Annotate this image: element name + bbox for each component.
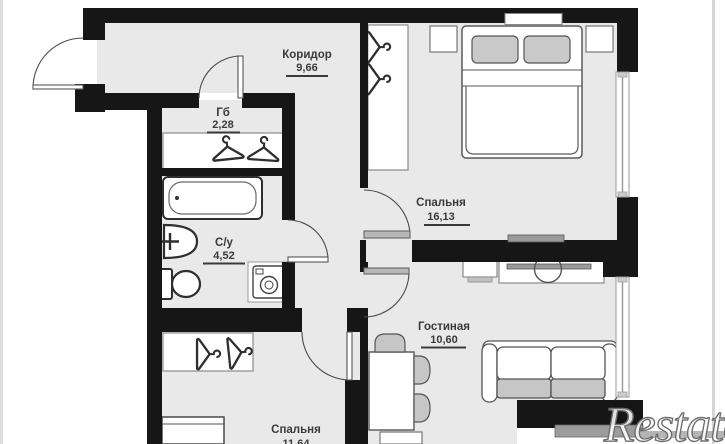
wardrobe-icon bbox=[367, 25, 408, 170]
room-label-bathroom: С/у bbox=[215, 237, 234, 249]
chair-icon bbox=[380, 432, 422, 444]
closet-icon bbox=[163, 133, 288, 169]
room-area-bathroom: 4,52 bbox=[213, 250, 234, 262]
room-area-livingroom: 10,60 bbox=[430, 334, 458, 346]
window-icon bbox=[616, 277, 629, 397]
room-area-bedroom2: 11,64 bbox=[283, 438, 311, 444]
room-label-bedroom2: Спальня bbox=[271, 424, 321, 436]
door-opening bbox=[366, 240, 412, 262]
tv-icon bbox=[508, 235, 564, 242]
room-area-corridor: 9,66 bbox=[296, 62, 317, 74]
room-label-wardrobe: Гб bbox=[216, 107, 230, 119]
toilet-icon bbox=[159, 269, 200, 299]
page-right-edge bbox=[712, 0, 715, 444]
room-area-bedroom1: 16,13 bbox=[427, 211, 455, 223]
nightstand-icon bbox=[586, 26, 613, 52]
chair-icon bbox=[414, 394, 430, 422]
chair-icon bbox=[375, 334, 405, 352]
window-icon bbox=[616, 72, 629, 197]
sofa-icon bbox=[482, 341, 617, 402]
page-left-edge bbox=[0, 0, 3, 444]
bathtub-icon bbox=[163, 177, 262, 219]
room-label-bedroom1: Спальня bbox=[416, 197, 466, 209]
nightstand-icon bbox=[430, 26, 457, 52]
room-label-corridor: Коридор bbox=[282, 49, 332, 61]
radiator-icon bbox=[505, 14, 562, 25]
bed-icon bbox=[162, 417, 224, 444]
floor-plan-page: Коридор 9,66 Гб 2,28 С/у 4,52 Спальня 16… bbox=[0, 0, 725, 444]
entrance-door-icon bbox=[33, 38, 83, 89]
sink-icon bbox=[161, 225, 197, 258]
watermark: Restate bbox=[603, 396, 725, 444]
room-label-livingroom: Гостиная bbox=[418, 321, 470, 333]
chair-icon bbox=[414, 356, 430, 384]
double-bed-icon bbox=[462, 26, 582, 158]
room-area-wardrobe: 2,28 bbox=[212, 119, 233, 131]
wardrobe-icon bbox=[163, 333, 253, 371]
floor-plan: Коридор 9,66 Гб 2,28 С/у 4,52 Спальня 16… bbox=[0, 0, 725, 444]
